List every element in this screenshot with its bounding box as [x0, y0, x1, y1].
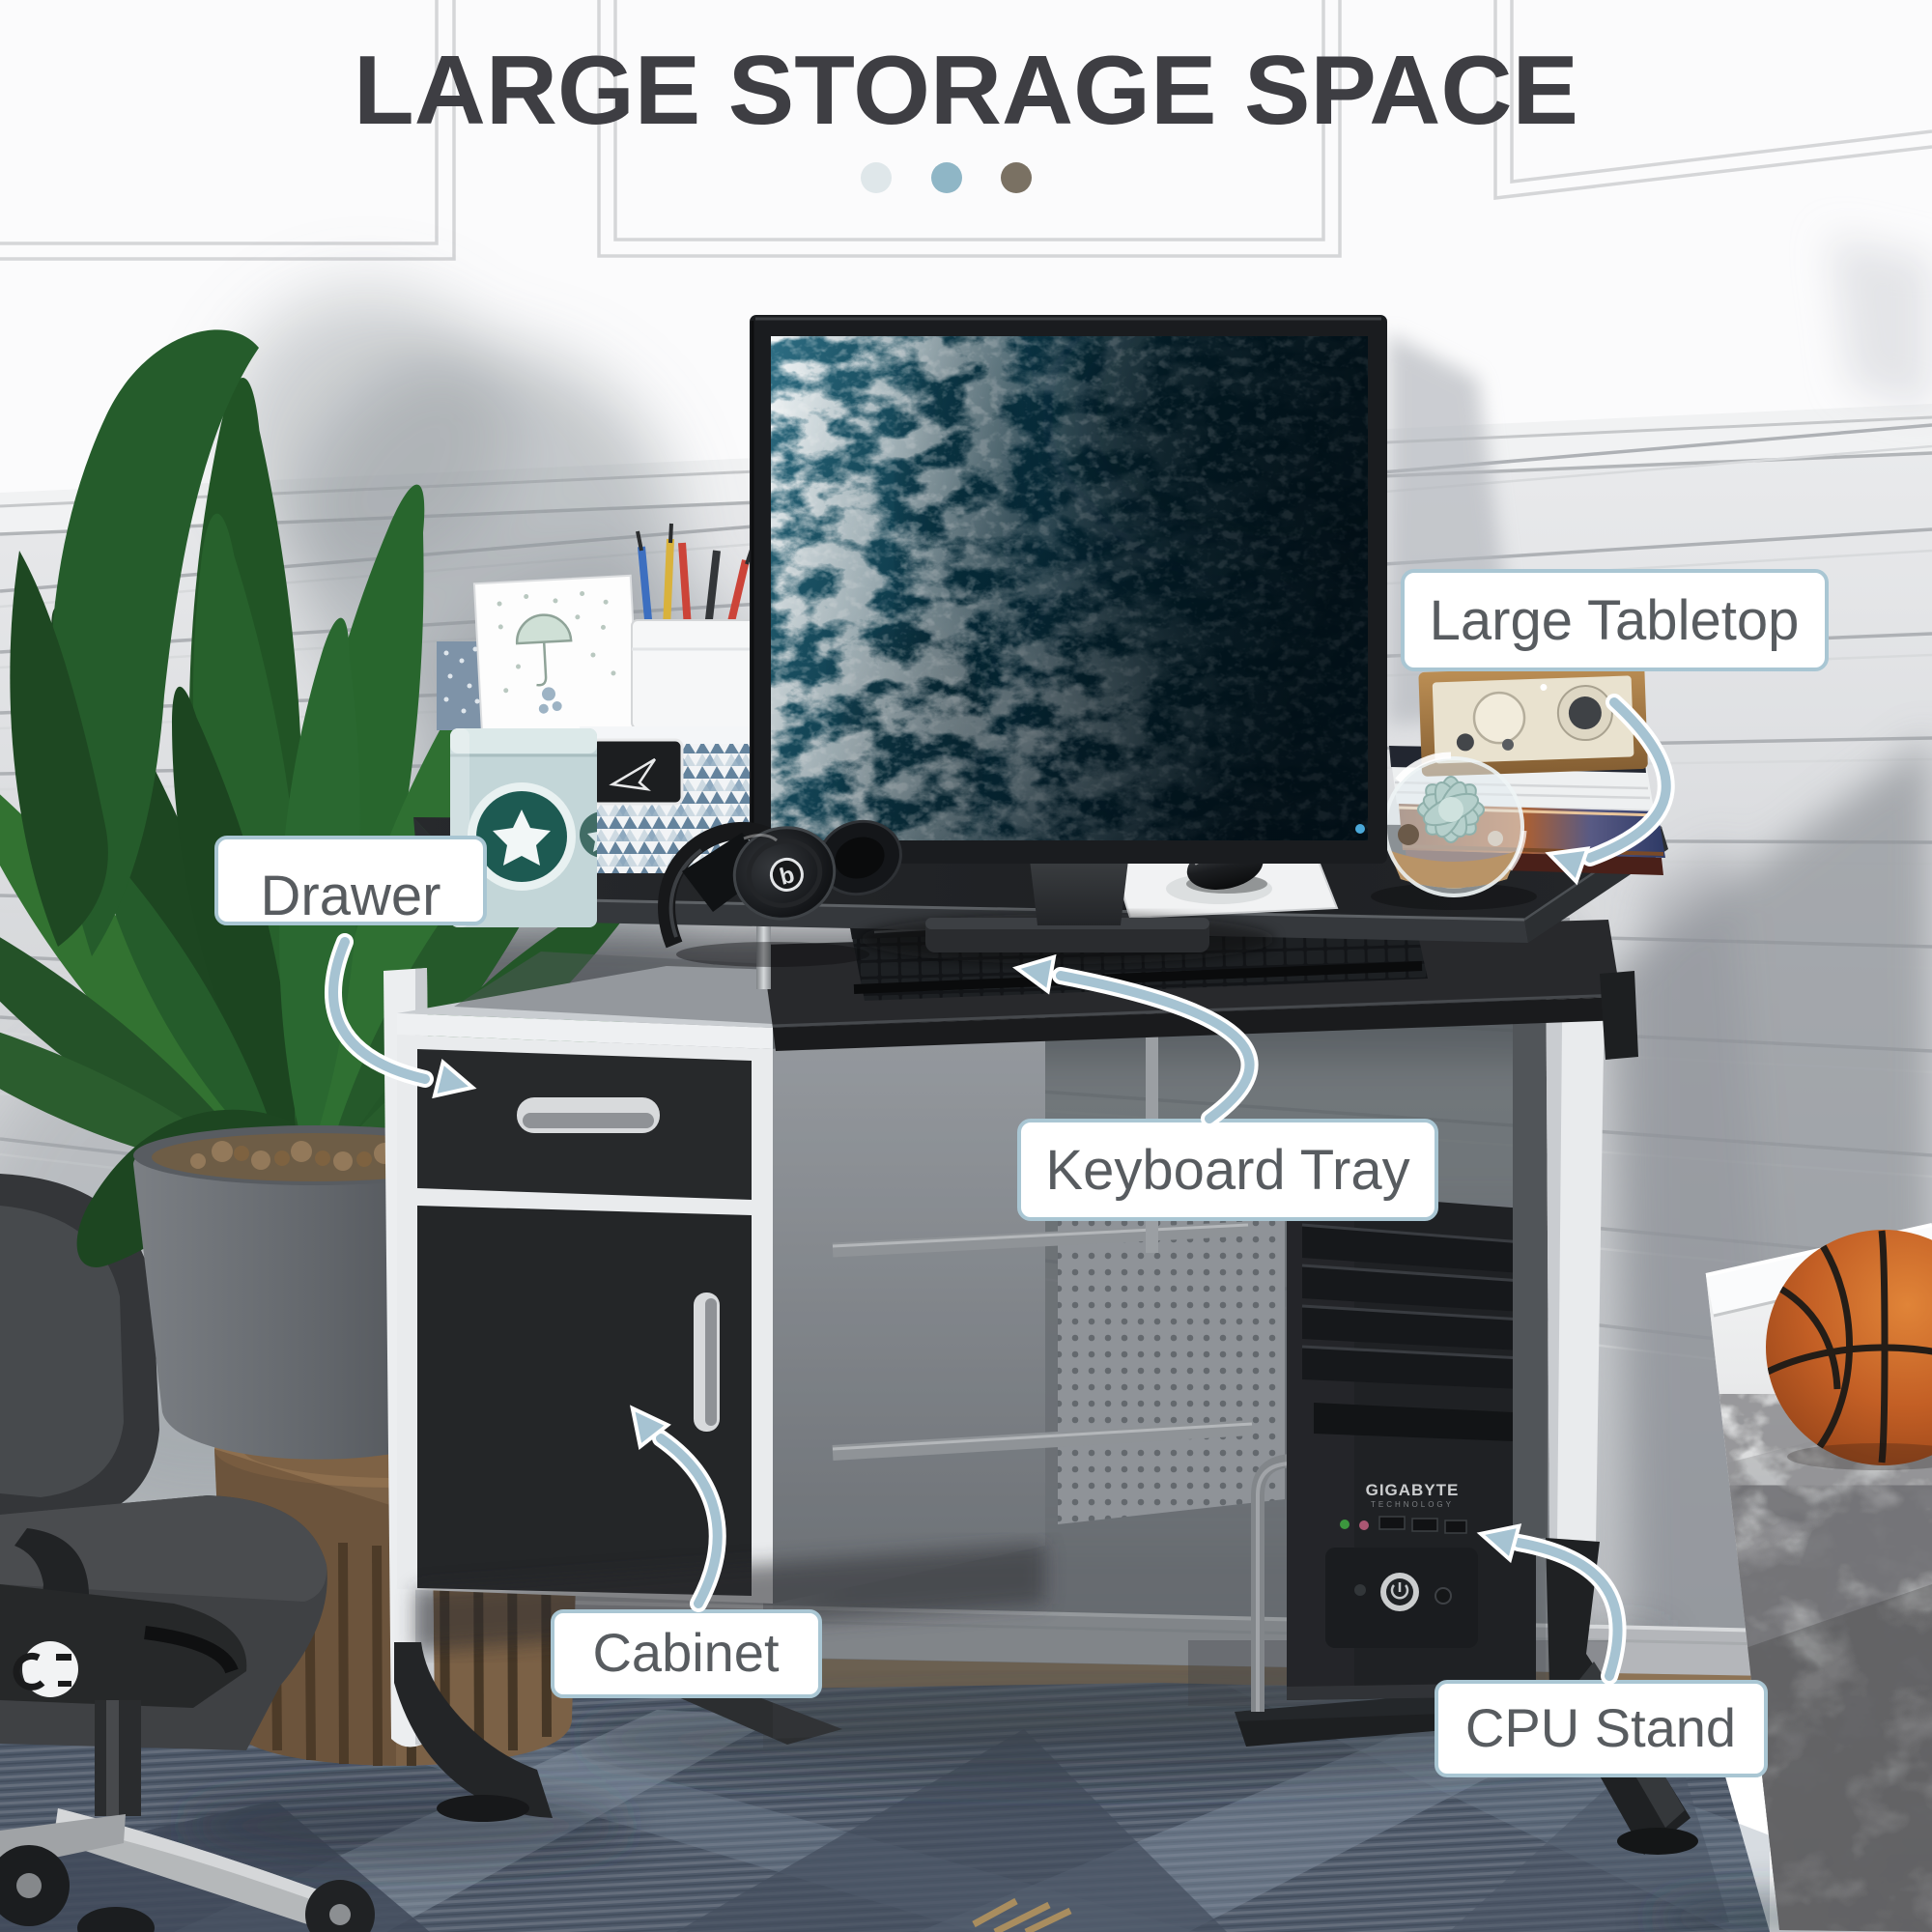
- svg-text:CPU Stand: CPU Stand: [1465, 1697, 1736, 1758]
- svg-text:Cabinet: Cabinet: [592, 1622, 779, 1683]
- svg-text:Drawer: Drawer: [261, 865, 441, 927]
- svg-text:Keyboard Tray: Keyboard Tray: [1045, 1139, 1409, 1202]
- svg-text:Large Tabletop: Large Tabletop: [1430, 589, 1800, 652]
- svg-text:LARGE STORAGE SPACE: LARGE STORAGE SPACE: [354, 37, 1578, 145]
